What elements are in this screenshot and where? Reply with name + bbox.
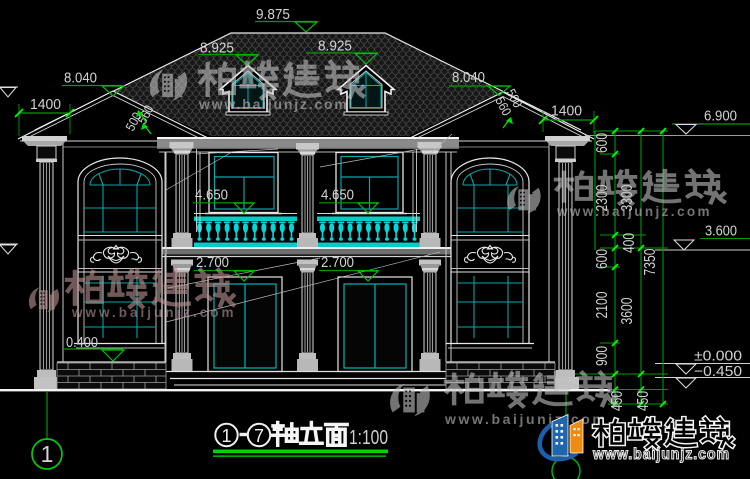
svg-text:±0.000: ±0.000 xyxy=(694,349,742,365)
svg-text:4.650: 4.650 xyxy=(195,188,228,204)
svg-text:www.baijunjz.com: www.baijunjz.com xyxy=(592,446,730,463)
svg-text:900: 900 xyxy=(594,346,611,366)
svg-text:1400: 1400 xyxy=(551,104,582,120)
svg-text:8.040: 8.040 xyxy=(452,70,485,86)
svg-text:3.600: 3.600 xyxy=(705,224,737,240)
svg-text:www.baijunjz.com: www.baijunjz.com xyxy=(198,96,349,112)
svg-text:7350: 7350 xyxy=(642,248,659,275)
svg-text:600: 600 xyxy=(594,133,611,153)
svg-text:8.925: 8.925 xyxy=(318,39,352,55)
svg-text:1400: 1400 xyxy=(30,97,61,113)
svg-text:2.700: 2.700 xyxy=(321,255,354,271)
svg-text:www.baijunjz.com: www.baijunjz.com xyxy=(556,204,712,219)
svg-text:4.650: 4.650 xyxy=(321,188,354,204)
svg-text:3600: 3600 xyxy=(619,297,636,324)
svg-text:www.baijunjz.com: www.baijunjz.com xyxy=(71,305,237,320)
svg-text:9.875: 9.875 xyxy=(256,7,290,23)
svg-text:600: 600 xyxy=(594,249,611,269)
svg-text:1:100: 1:100 xyxy=(349,427,388,449)
svg-text:1: 1 xyxy=(221,426,231,446)
svg-text:6.900: 6.900 xyxy=(704,109,737,125)
svg-text:1: 1 xyxy=(41,441,54,467)
svg-text:400: 400 xyxy=(621,233,638,253)
svg-text:8.040: 8.040 xyxy=(64,71,97,87)
svg-text:7: 7 xyxy=(254,426,264,446)
svg-text:450: 450 xyxy=(635,391,652,411)
svg-text:2100: 2100 xyxy=(594,291,611,318)
